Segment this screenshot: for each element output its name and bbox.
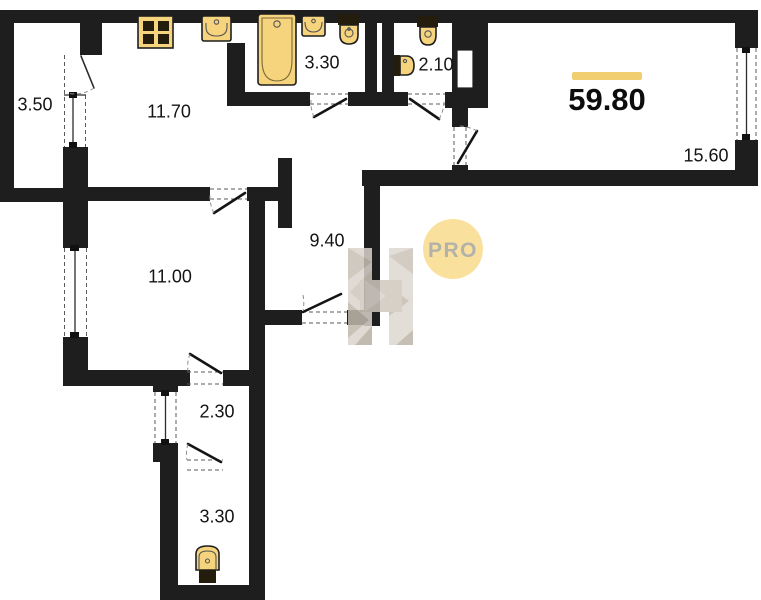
watermark-letter-shape [348, 248, 413, 345]
area-label-balcony: 3.50 [17, 95, 52, 116]
ventilation-shaft [457, 50, 473, 88]
window-corridor [155, 390, 176, 445]
wall-segment [452, 108, 468, 127]
wall-segment [227, 92, 310, 106]
wall-segment [348, 92, 408, 106]
wall-segment [153, 378, 178, 392]
area-label-bathroom: 3.30 [304, 53, 339, 74]
door-bedroom [210, 189, 247, 213]
wall-segment [735, 23, 758, 48]
door-wc [408, 94, 445, 119]
window-living-room [737, 47, 756, 140]
wall-segment [0, 10, 14, 202]
door-storage [186, 444, 223, 470]
wall-segment [249, 198, 265, 600]
area-label-storage: 3.30 [199, 507, 234, 528]
wall-segment [362, 170, 758, 186]
wc-toilet-icon [417, 16, 438, 45]
wall-segment [735, 140, 758, 186]
door-bathroom [310, 94, 348, 117]
wall-segment [80, 12, 102, 55]
wall-segment [65, 187, 210, 201]
bathroom-sink-icon [302, 16, 325, 36]
area-label-bedroom: 11.00 [148, 267, 192, 288]
washbasin-icon [338, 14, 359, 44]
wall-segment [250, 310, 302, 325]
window-bedroom [65, 245, 87, 338]
area-label-living-room: 15.60 [683, 146, 728, 167]
wall-segment [160, 585, 264, 600]
wall-segment [0, 188, 64, 202]
door-entrance [302, 294, 347, 323]
toilet-icon [196, 546, 219, 583]
total-area-label: 59.80 [568, 82, 646, 118]
floor-plan: PRO 3.50 11.70 3.30 2.10 59.80 15.60 9.4… [0, 0, 761, 600]
door-corridor-top [187, 354, 223, 384]
area-label-hallway: 9.40 [309, 231, 344, 252]
wall-segment [365, 12, 377, 95]
window-balcony [64, 55, 86, 148]
wall-segment [160, 462, 178, 600]
area-label-kitchen: 11.70 [147, 102, 191, 123]
wall-segment [153, 443, 178, 462]
wall-segment [227, 43, 245, 92]
door-balcony [67, 56, 94, 94]
kitchen-sink-icon [202, 16, 231, 41]
stove-icon [138, 16, 173, 48]
bathtub-icon [258, 14, 296, 85]
total-area-underline [572, 72, 642, 80]
watermark-text: PRO [428, 239, 478, 262]
wc-sink-icon [394, 55, 414, 76]
area-label-corridor: 2.30 [199, 402, 234, 423]
area-label-wc: 2.10 [418, 55, 453, 76]
wall-segment [382, 12, 394, 95]
floor-plan-drawing: PRO [0, 0, 761, 600]
wall-segment [278, 158, 292, 228]
door-living-room [454, 126, 477, 165]
